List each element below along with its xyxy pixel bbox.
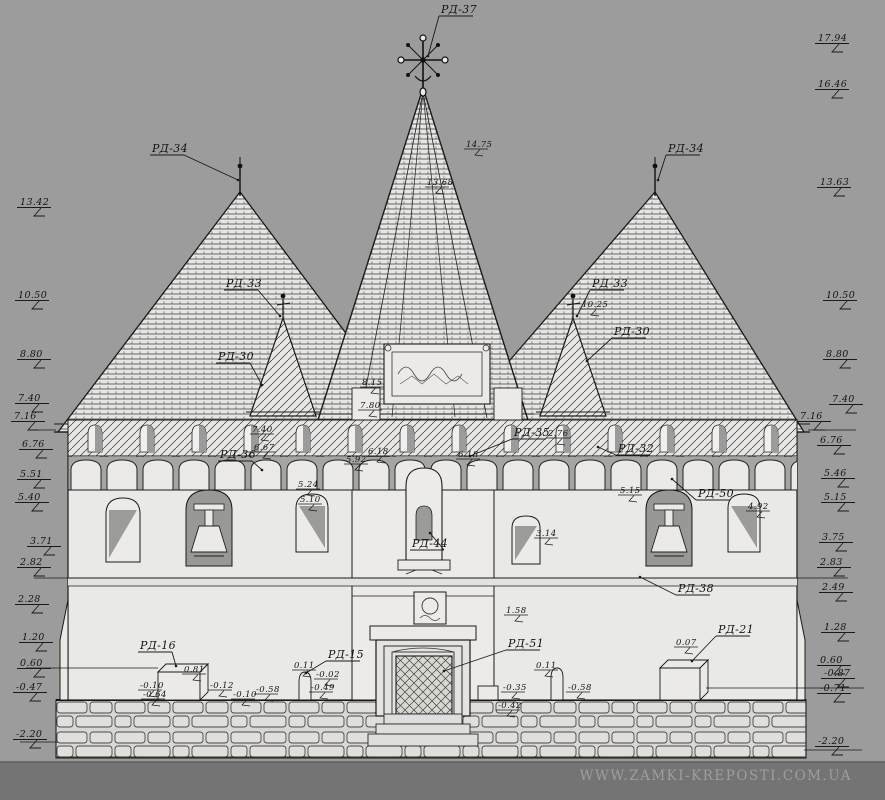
dimension-label: -0.64 [143,690,167,700]
callout-label: РД-16 [139,639,176,652]
callout-target-dot [429,532,432,535]
entrance-door[interactable] [396,656,452,714]
callout-label: РД-21 [717,623,754,636]
machicolation-niche [646,490,692,566]
callout-target-dot [261,384,264,387]
elevation-mark: 10.50 [18,290,47,301]
dimension-label: 5.92 [346,455,367,465]
dimension-label: 0.81 [184,665,205,675]
elevation-mark: -0.71 [820,683,846,694]
elevation-mark: 8.80 [826,349,849,360]
callout-target-dot [586,360,589,363]
elevation-mark: 5.51 [20,469,43,480]
elevation-mark: 1.20 [22,632,45,643]
callout-target-dot [657,179,660,182]
dimension-label: 5.10 [300,495,321,505]
dimension-label: -0.10 [233,690,257,700]
elevation-mark: 7.40 [18,393,41,404]
dimension-label: 6.18 [458,450,479,460]
dimension-label: -0.49 [311,683,335,693]
callout-label: РД-33 [225,277,262,290]
elevation-mark: 6.76 [22,439,45,450]
portal-steps [368,714,478,746]
elevation-mark: 7.40 [832,394,855,405]
elevation-mark: -2.20 [818,736,844,747]
elevation-mark: 13.42 [20,197,49,208]
callout-label: РД-34 [151,142,188,155]
scanned-drawing-page: 13.4210.508.807.407.166.765.515.403.712.… [0,0,885,800]
elevation-mark: 0.60 [820,655,843,666]
dimension-label: 0.11 [294,661,315,671]
dimension-label: -0.58 [568,683,592,693]
dimension-label: 7.40 [252,425,273,435]
elevation-drawing: 13.4210.508.807.407.166.765.515.403.712.… [0,0,885,800]
elevation-mark: 8.80 [20,349,43,360]
callout-label: РД-15 [327,648,364,661]
gallery-band [68,420,797,456]
dimension-label: 14.75 [466,140,492,150]
central-niche [398,468,450,574]
callout-label: РД-30 [613,325,650,338]
callout-label: РД-50 [697,487,734,500]
dimension-label: 7.80 [360,401,381,411]
portal-plaque [414,592,446,624]
small-block-center [478,686,498,700]
dormer-plaque [384,344,490,404]
callout-label: РД-33 [591,277,628,290]
callout-target-dot [443,670,446,673]
watermark: WWW.ZAMKI-KREPOSTI.COM.UA [580,768,852,784]
dimension-label: 6.67 [254,443,275,453]
callout-target-dot [691,660,694,663]
stone-block-right [660,660,708,700]
elevation-mark: 2.49 [821,582,845,593]
dimension-label: -0.42 [498,701,522,711]
dimension-label: 5.15 [620,486,641,496]
dimension-label: -0.12 [210,681,234,691]
callout-label: РД-51 [507,637,544,650]
elevation-mark: 3.71 [30,536,53,547]
callout-target-dot [671,478,674,481]
callout-label: РД-35 [513,426,550,439]
dimension-label: 5.24 [298,480,319,490]
elevation-mark: 7.16 [14,411,37,422]
dimension-label: 0.07 [676,638,697,648]
elevation-mark: 0.60 [20,658,43,669]
dimension-label: 13.68 [427,178,454,188]
callout-target-dot [427,55,430,58]
right-roof-dormer-box [494,388,522,420]
dimension-label: -0.35 [503,683,527,693]
elevation-mark: 2.28 [17,594,41,605]
elevation-mark: 6.76 [820,435,843,446]
elevation-mark: 17.94 [818,33,847,44]
elevation-mark: 5.15 [824,492,847,503]
elevation-mark: 3.75 [822,532,845,543]
dimension-label: 8.15 [362,378,383,388]
elevation-mark: 2.82 [19,557,43,568]
callout-target-dot [279,315,282,318]
machicolation-niche [186,490,232,566]
elevation-mark: 5.46 [824,468,847,479]
arched-window [512,516,540,564]
elevation-mark: -2.20 [16,729,42,740]
callout-target-dot [237,179,240,182]
elevation-mark: 1.28 [824,622,847,633]
elevation-mark: 5.40 [18,492,41,503]
callout-label: РД-34 [667,142,704,155]
dimension-label: 3.14 [536,529,557,539]
portal-entablature [370,626,476,640]
elevation-mark: 16.46 [818,79,847,90]
callout-label: РД-36 [219,448,256,461]
dimension-label: -0.58 [256,685,280,695]
elevation-mark: 10.50 [826,290,855,301]
dimension-label: 2.76 [547,429,569,439]
dimension-label: 0.11 [536,661,557,671]
elevation-mark: 2.83 [819,557,843,568]
callout-label: РД-38 [677,582,714,595]
elevation-mark: 7.16 [800,411,823,422]
dimension-label: 10.25 [582,300,608,310]
elevation-mark: -0.87 [824,668,851,679]
dimension-label: 1.58 [506,606,527,616]
callout-target-dot [261,469,264,472]
elevation-mark: -0.47 [16,682,43,693]
dimension-label: 6.18 [368,447,389,457]
callout-label: РД-37 [440,3,477,16]
dimension-label: 4.92 [747,502,769,512]
callout-target-dot [175,665,178,668]
callout-target-dot [597,446,600,449]
elevation-mark: 13.63 [820,177,849,188]
callout-label: РД-30 [217,350,254,363]
arched-window [106,498,140,562]
callout-target-dot [576,315,579,318]
callout-target-dot [639,576,642,579]
dimension-label: -0.02 [316,670,340,680]
callout-label: РД-32 [617,442,654,455]
post-right [551,668,563,700]
footer: WWW.ZAMKI-KREPOSTI.COM.UA [0,762,885,800]
